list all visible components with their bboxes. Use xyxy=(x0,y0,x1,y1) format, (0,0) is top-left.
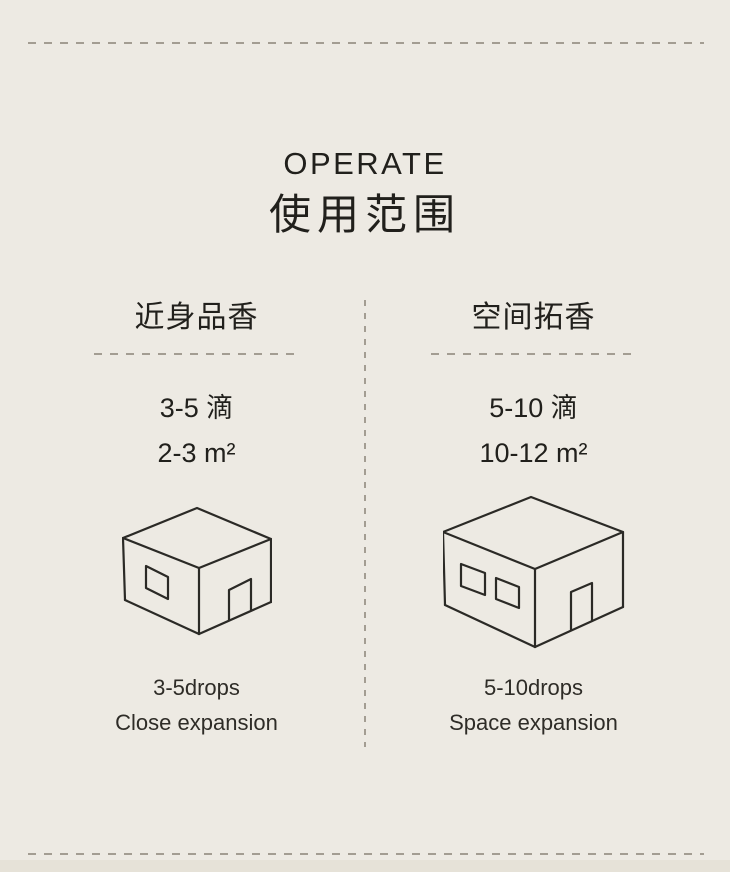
top-dashed-divider xyxy=(28,42,704,44)
large-house-icon xyxy=(443,495,625,649)
caption-english: Close expansion xyxy=(115,710,278,736)
page-title: 使用范围 xyxy=(0,191,730,239)
drops-value-zh: 3-5 滴 xyxy=(160,392,234,424)
footer-strip xyxy=(0,860,730,872)
usage-range-infographic: OPERATE 使用范围 近身品香 3-5 滴 2-3 m² 3 xyxy=(0,0,730,872)
column-heading: 近身品香 xyxy=(135,301,259,336)
drops-value-zh: 5-10 滴 xyxy=(489,392,578,424)
comparison-columns: 近身品香 3-5 滴 2-3 m² 3-5drops Close expansi… xyxy=(28,300,702,750)
caption-english: Space expansion xyxy=(449,710,618,736)
column-close-fragrance: 近身品香 3-5 滴 2-3 m² 3-5drops Close expansi… xyxy=(28,300,365,750)
area-value: 10-12 m² xyxy=(479,437,587,469)
heading-dashed-underline xyxy=(431,353,636,355)
drops-value-en: 5-10drops xyxy=(484,675,583,701)
house-illustration-wrap xyxy=(443,469,625,675)
house-illustration-wrap xyxy=(122,469,272,675)
column-space-fragrance: 空间拓香 5-10 滴 10-12 m² 5-10drops Space e xyxy=(365,300,702,750)
column-heading: 空间拓香 xyxy=(472,301,596,336)
title-block: OPERATE 使用范围 xyxy=(0,146,730,239)
drops-value-en: 3-5drops xyxy=(153,675,240,701)
small-house-icon xyxy=(122,506,272,638)
title-english: OPERATE xyxy=(0,146,730,182)
area-value: 2-3 m² xyxy=(157,437,235,469)
heading-dashed-underline xyxy=(94,353,299,355)
bottom-dashed-divider xyxy=(28,853,704,855)
center-dashed-divider xyxy=(364,300,366,747)
